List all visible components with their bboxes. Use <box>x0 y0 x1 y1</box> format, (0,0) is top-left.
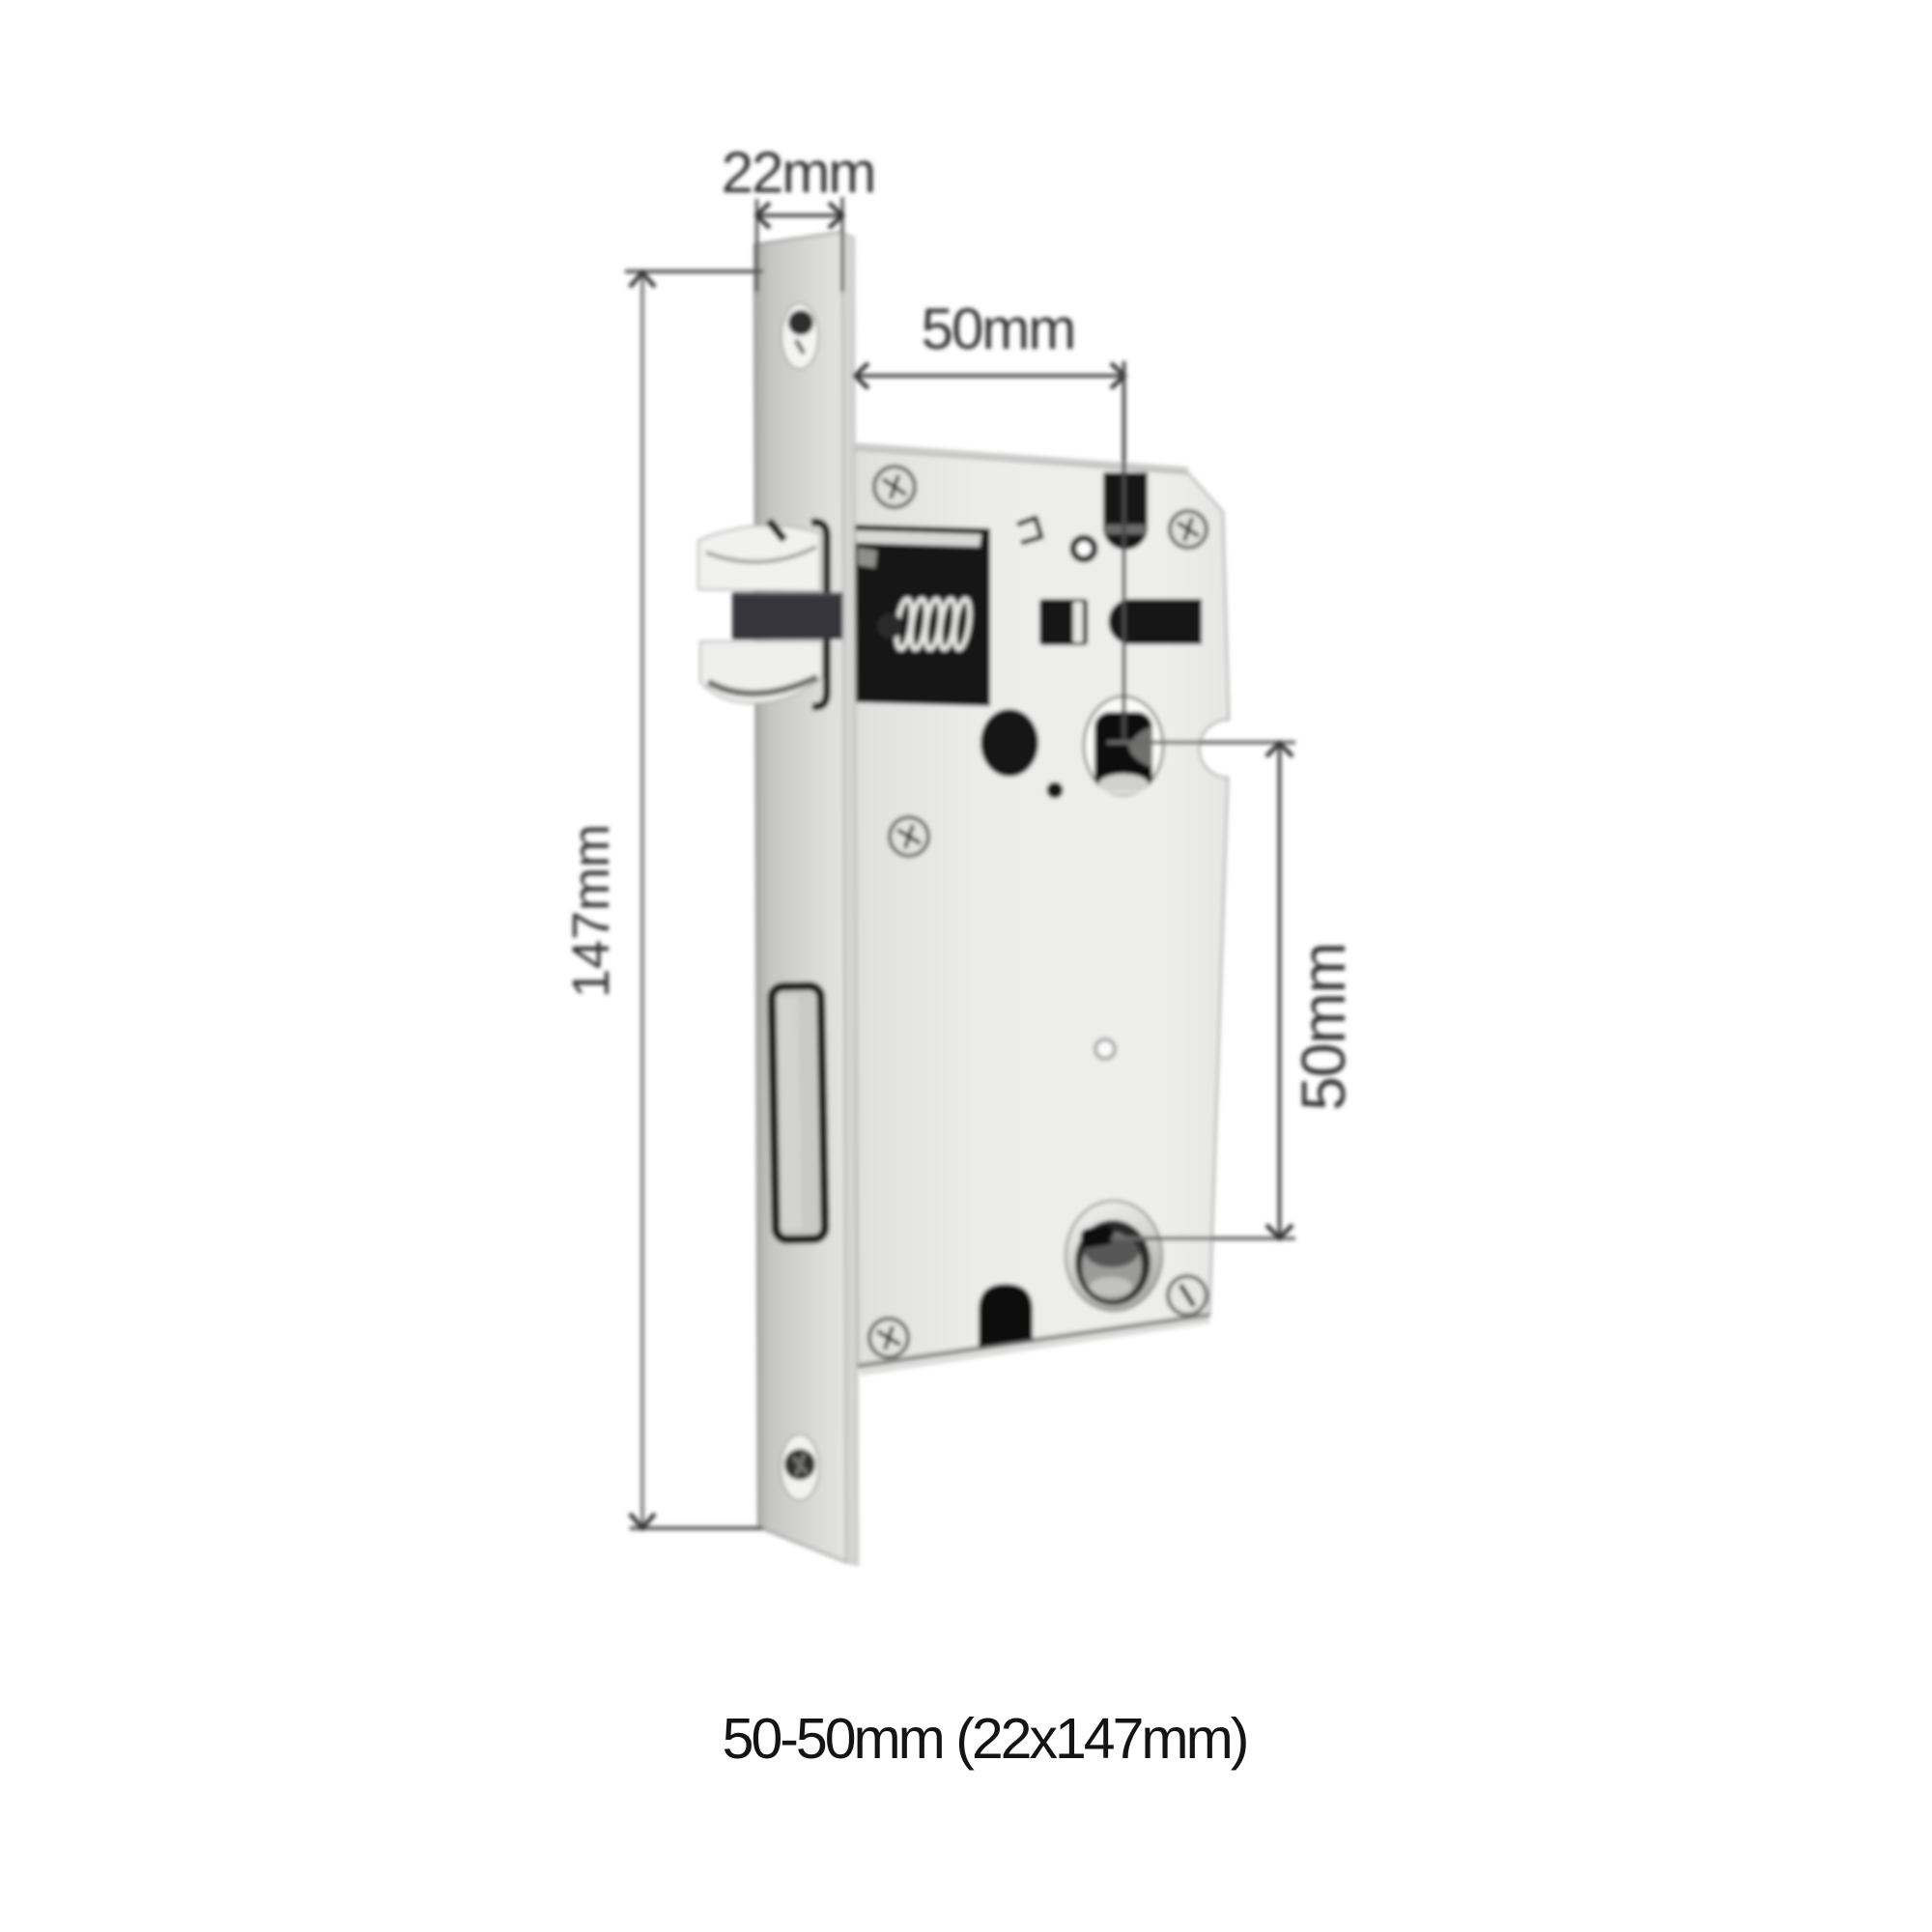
svg-text:50mm: 50mm <box>1289 943 1358 1111</box>
svg-text:22mm: 22mm <box>722 140 875 205</box>
svg-text:50mm: 50mm <box>922 297 1075 361</box>
svg-text:147mm: 147mm <box>562 824 620 998</box>
svg-text:50-50mm (22x147mm): 50-50mm (22x147mm) <box>723 1707 1247 1771</box>
